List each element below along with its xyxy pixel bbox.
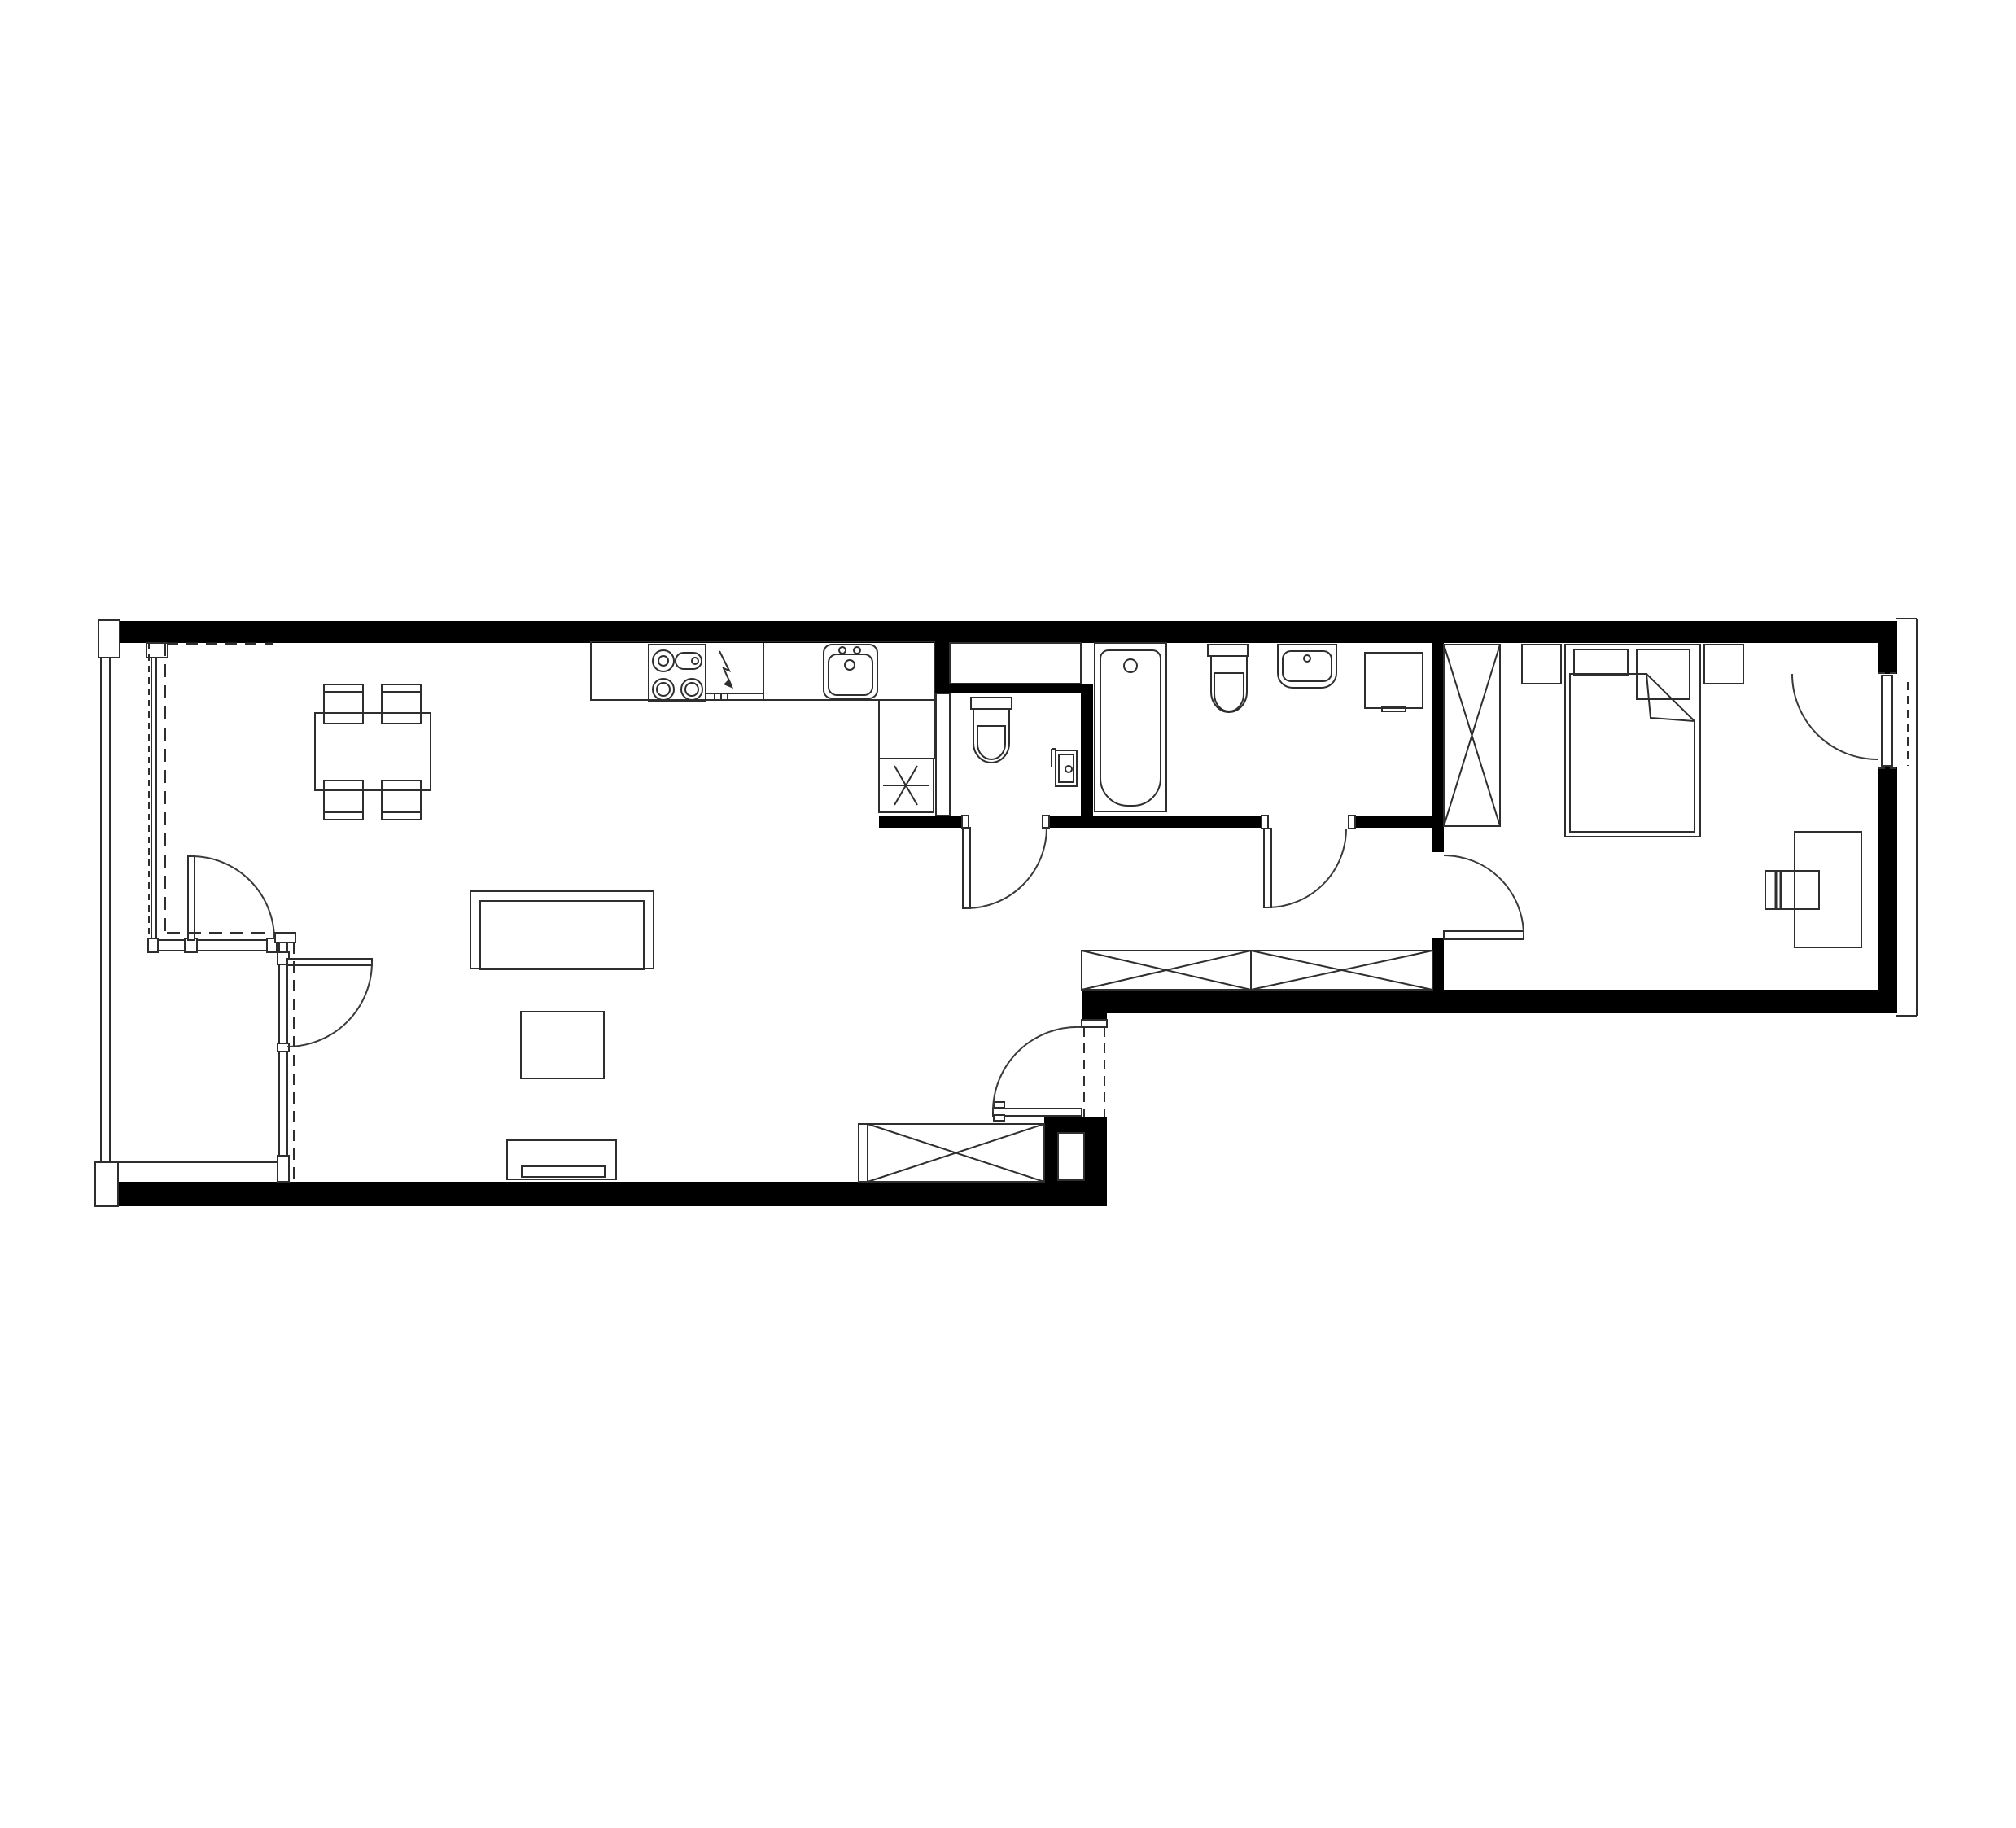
floor-plan-page [0, 0, 2016, 1828]
floor-plan [0, 0, 2016, 1828]
background [0, 0, 2016, 1828]
